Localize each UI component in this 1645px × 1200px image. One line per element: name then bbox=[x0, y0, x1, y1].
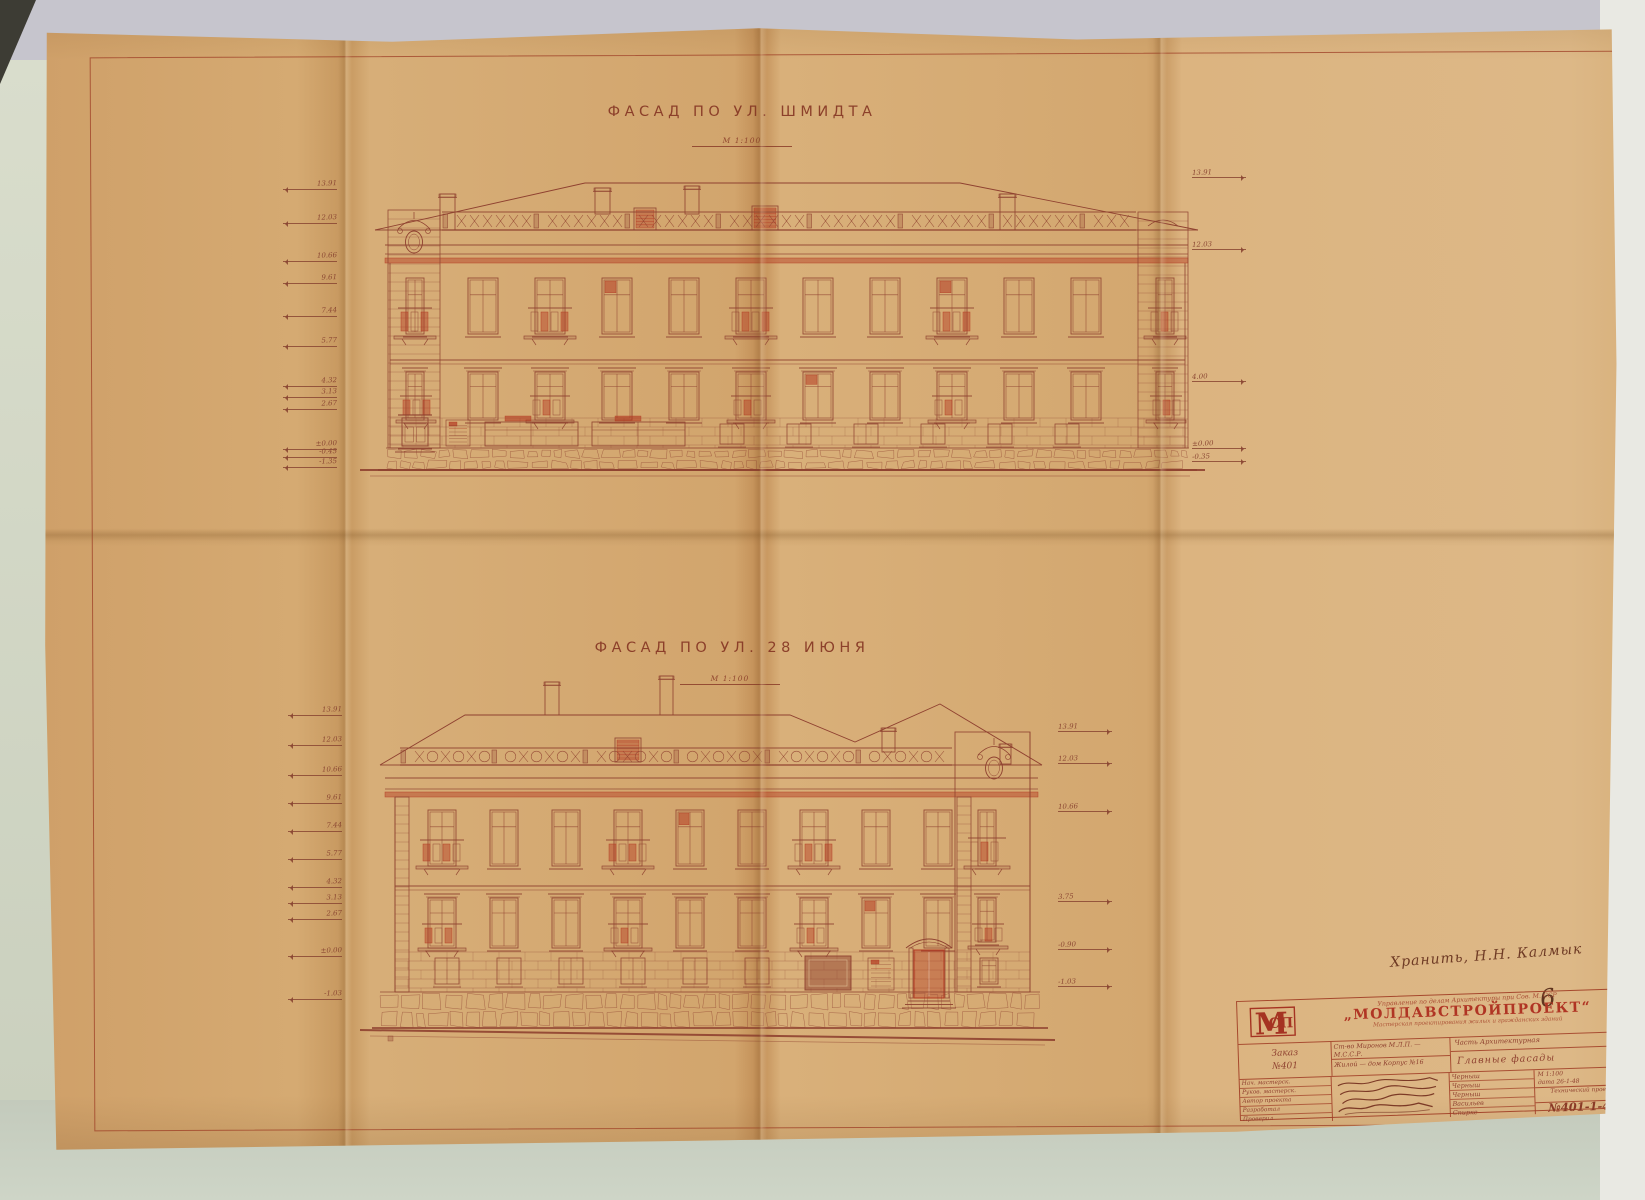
facade-28-june-drawing bbox=[300, 640, 1100, 1060]
elevation-mark: 3.75 bbox=[1058, 892, 1112, 902]
elevation-mark: 2.67 bbox=[288, 910, 342, 920]
object-cell: Ст-во Миронов М.Л.П. — М.С.С.Р. Жилой — … bbox=[1331, 1038, 1451, 1076]
elevation-mark: 12.03 bbox=[1192, 240, 1246, 250]
elevation-mark: 2.67 bbox=[283, 400, 337, 410]
elevation-mark: 12.03 bbox=[1058, 754, 1112, 764]
elevation-mark: 13.91 bbox=[288, 706, 342, 716]
facade-scale-schmidt: М 1:100 bbox=[692, 136, 792, 147]
elevation-mark: 12.03 bbox=[283, 214, 337, 224]
elevation-mark: 13.91 bbox=[1058, 722, 1112, 732]
elevation-mark: 10.66 bbox=[288, 766, 342, 776]
facade-title-schmidt: ФАСАД ПО УЛ. ШМИДТА bbox=[462, 104, 1022, 120]
elevation-mark: 4.32 bbox=[288, 878, 342, 888]
org-logo-monogram: М СП bbox=[1237, 1000, 1308, 1044]
facade-schmidt-drawing bbox=[300, 150, 1240, 495]
elevation-mark: 9.61 bbox=[283, 274, 337, 284]
order-number-cell: Заказ №401 bbox=[1238, 1042, 1332, 1079]
elevation-mark: 3.13 bbox=[283, 388, 337, 398]
title-block: М СП Управление по делам Архитектуры при… bbox=[1236, 988, 1632, 1121]
sheet-content-cell: Часть Архитектурная Главные фасады bbox=[1450, 1032, 1629, 1072]
elevation-mark: 5.77 bbox=[288, 850, 342, 860]
elevation-mark: -0.90 bbox=[1058, 940, 1112, 950]
elevation-mark: 12.03 bbox=[288, 736, 342, 746]
elevation-mark: -1.03 bbox=[288, 990, 342, 1000]
elevation-mark: 9.61 bbox=[288, 794, 342, 804]
elevation-mark: ±0.00 bbox=[1192, 439, 1246, 449]
elevation-mark: 13.91 bbox=[1192, 168, 1246, 178]
elevation-mark: 4.32 bbox=[283, 377, 337, 387]
facade-scale-28-june: М 1:100 bbox=[680, 674, 780, 685]
elevation-mark: -1.35 bbox=[283, 458, 337, 468]
svg-text:СП: СП bbox=[1269, 1015, 1294, 1032]
facade-title-28-june: ФАСАД ПО УЛ. 28 ИЮНЯ bbox=[452, 640, 1012, 656]
blueprint-sheet: ФАСАД ПО УЛ. ШМИДТА М 1:100 ФАСАД ПО УЛ.… bbox=[42, 26, 1634, 1152]
photo-of-blueprint: { "photo": { "paper_color": "#d5aa72", "… bbox=[0, 0, 1645, 1200]
elevation-mark: -1.03 bbox=[1058, 977, 1112, 987]
elevation-mark: 13.91 bbox=[283, 180, 337, 190]
elevation-mark: 7.44 bbox=[283, 307, 337, 317]
elevation-mark: -0.35 bbox=[1192, 452, 1246, 462]
elevation-mark: 5.77 bbox=[283, 337, 337, 347]
elevation-mark: 10.66 bbox=[283, 252, 337, 262]
elevation-mark: 7.44 bbox=[288, 822, 342, 832]
elevation-mark: ±0.00 bbox=[288, 947, 342, 957]
elevation-mark: 3.13 bbox=[288, 894, 342, 904]
elevation-mark: 4.00 bbox=[1192, 372, 1246, 382]
elevation-mark: 10.66 bbox=[1058, 802, 1112, 812]
